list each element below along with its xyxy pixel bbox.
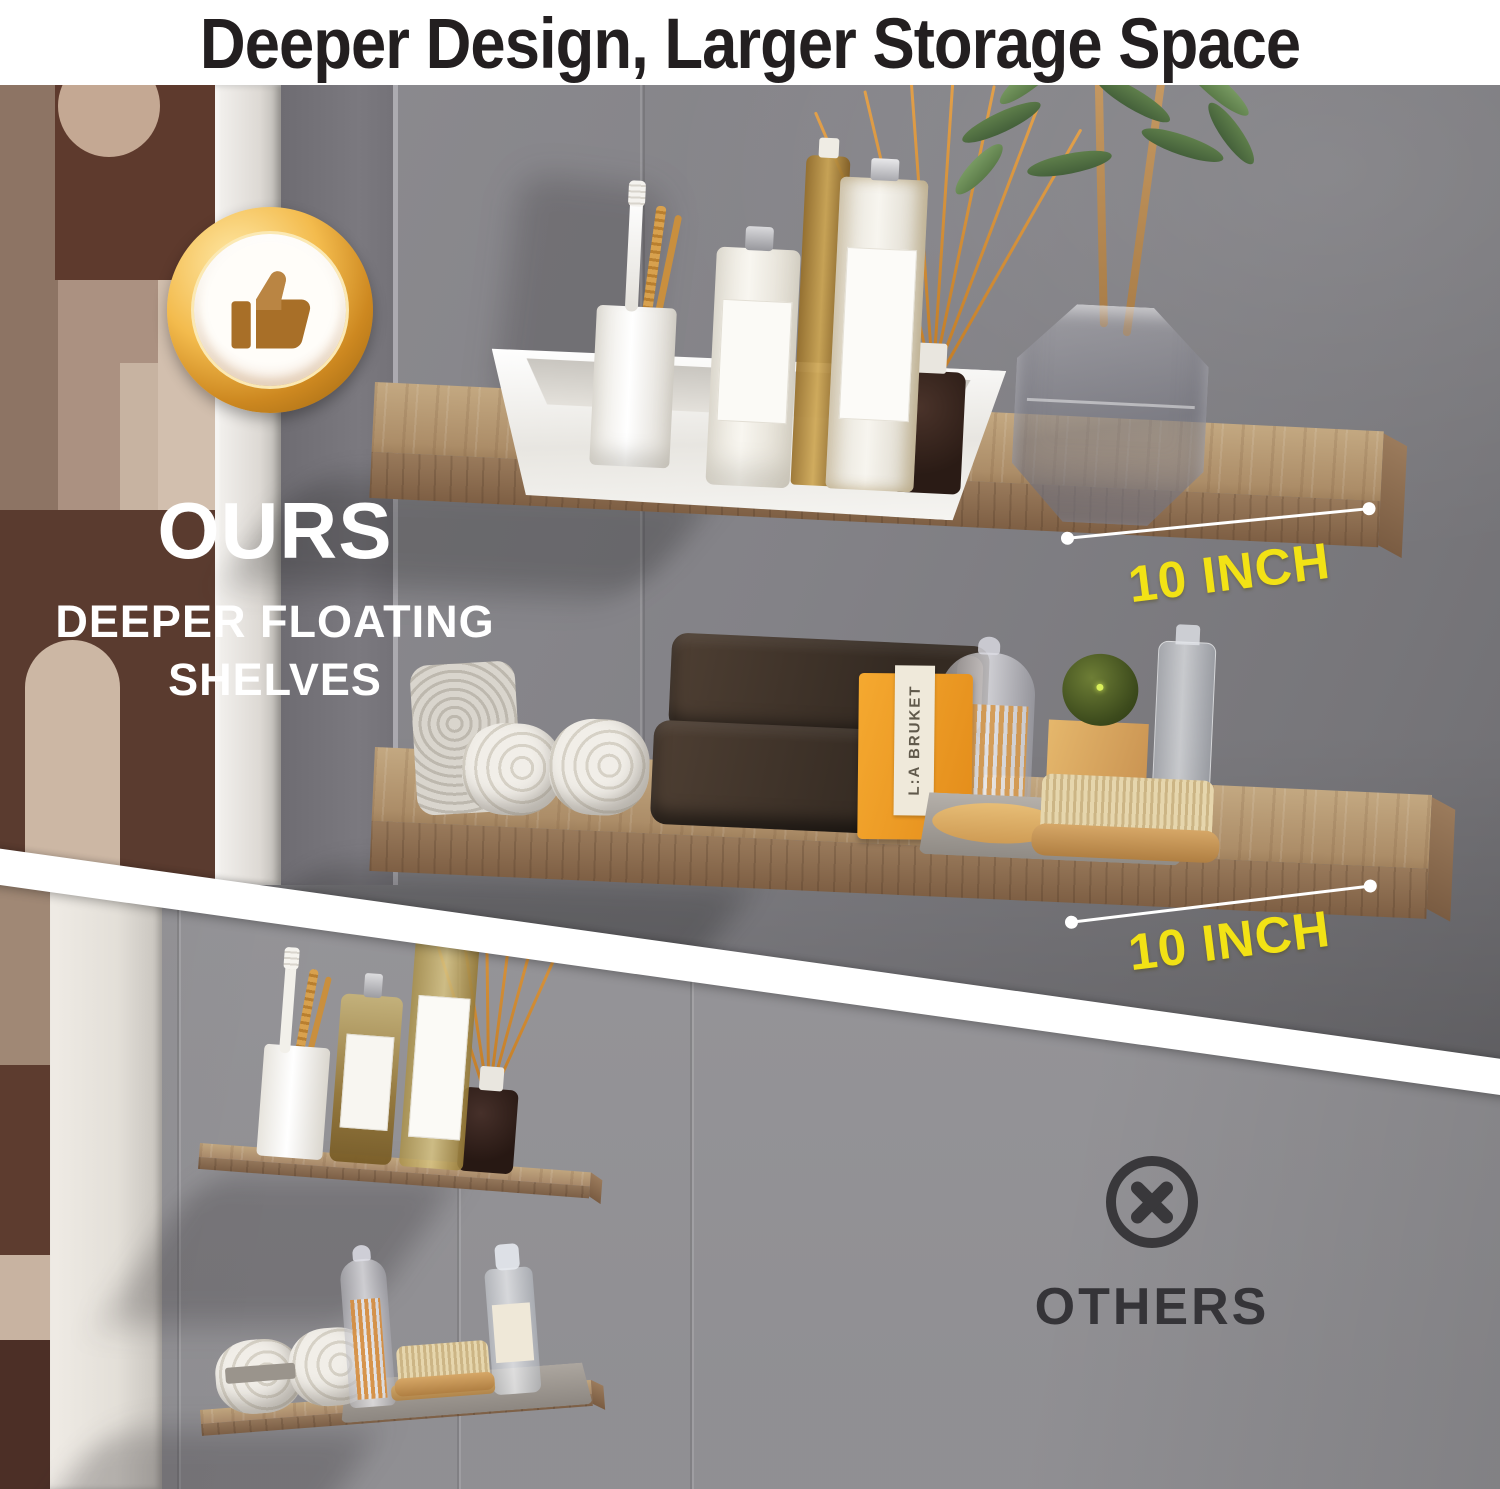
x-circle-icon bbox=[1106, 1156, 1198, 1248]
abstract-artwork-partial bbox=[0, 875, 50, 1489]
ours-sublabel-line1: DEEPER FLOATING bbox=[15, 593, 535, 651]
lotion-bottle bbox=[705, 247, 801, 489]
badge-inner-circle bbox=[194, 234, 346, 386]
toothbrush-cup bbox=[256, 1044, 330, 1161]
shower-gel-bottle bbox=[825, 176, 928, 492]
wall-molding bbox=[50, 875, 162, 1489]
product-comparison-image: Deeper Design, Larger Storage Space bbox=[0, 0, 1500, 1489]
ours-sublabel: DEEPER FLOATING SHELVES bbox=[15, 593, 535, 709]
diffuser-neck-band bbox=[479, 1066, 505, 1092]
toothbrush-cup bbox=[589, 305, 677, 469]
rolled-towel bbox=[547, 717, 651, 817]
artwork-shape bbox=[0, 1340, 50, 1489]
soap-box-label: L:A BRUKET bbox=[894, 665, 936, 815]
artwork-shape bbox=[0, 1065, 50, 1255]
gold-medal-badge bbox=[167, 207, 373, 413]
shelf-wood-end bbox=[1427, 797, 1456, 922]
others-label: OTHERS bbox=[952, 1277, 1352, 1337]
ours-label: OURS bbox=[55, 485, 495, 577]
page-title: Deeper Design, Larger Storage Space bbox=[200, 1, 1300, 83]
header: Deeper Design, Larger Storage Space bbox=[0, 0, 1500, 85]
artwork-shape bbox=[0, 1255, 50, 1340]
pump-bottle bbox=[329, 993, 403, 1165]
soap-brand-text: L:A BRUKET bbox=[905, 685, 923, 796]
thumbs-up-icon bbox=[214, 254, 326, 366]
diffuser-neck-band bbox=[916, 342, 947, 373]
ours-sublabel-line2: SHELVES bbox=[15, 651, 535, 709]
wall-seam bbox=[177, 875, 179, 1489]
